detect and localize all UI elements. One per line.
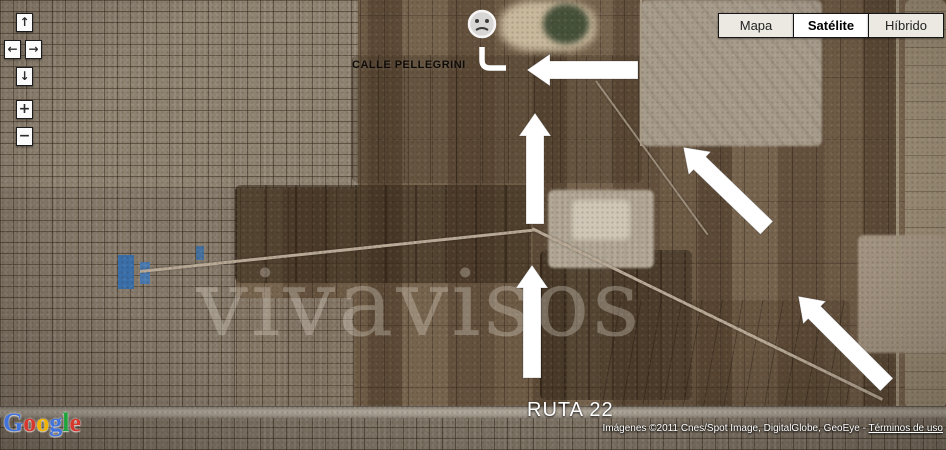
vivavisos-watermark: vivavisos (196, 258, 642, 350)
zoom-in-button[interactable]: + (16, 100, 33, 119)
google-logo-letter: e (69, 408, 81, 437)
street-label: CALLE PELLEGRINI (352, 59, 466, 71)
zoom-out-button[interactable]: − (16, 127, 33, 146)
google-logo-letter: G (3, 408, 23, 437)
satellite-map-canvas[interactable]: vivavisos CALLE PELLEGRINI RUTA 22 Imáge… (0, 0, 946, 450)
terrain-vignette (0, 0, 946, 450)
pan-right-button[interactable]: → (25, 40, 42, 59)
map-type-button-híbrido[interactable]: Híbrido (868, 13, 944, 38)
google-logo-letter: o (23, 408, 36, 437)
route-label: RUTA 22 (527, 399, 614, 422)
google-logo[interactable]: Google (3, 408, 81, 438)
terms-of-use-link[interactable]: Términos de uso (869, 423, 943, 434)
map-attribution: Imágenes ©2011 Cnes/Spot Image, DigitalG… (602, 423, 943, 434)
pan-down-button[interactable]: ↓ (16, 67, 33, 86)
map-type-button-satélite[interactable]: Satélite (793, 13, 869, 38)
attribution-text: Imágenes ©2011 Cnes/Spot Image, DigitalG… (602, 423, 868, 434)
google-logo-letter: g (49, 408, 62, 437)
pan-up-button[interactable]: ↑ (16, 13, 33, 32)
map-type-button-mapa[interactable]: Mapa (718, 13, 794, 38)
pan-left-button[interactable]: ← (4, 40, 21, 59)
map-type-control: MapaSatéliteHíbrido (718, 13, 944, 38)
google-logo-letter: o (36, 408, 49, 437)
